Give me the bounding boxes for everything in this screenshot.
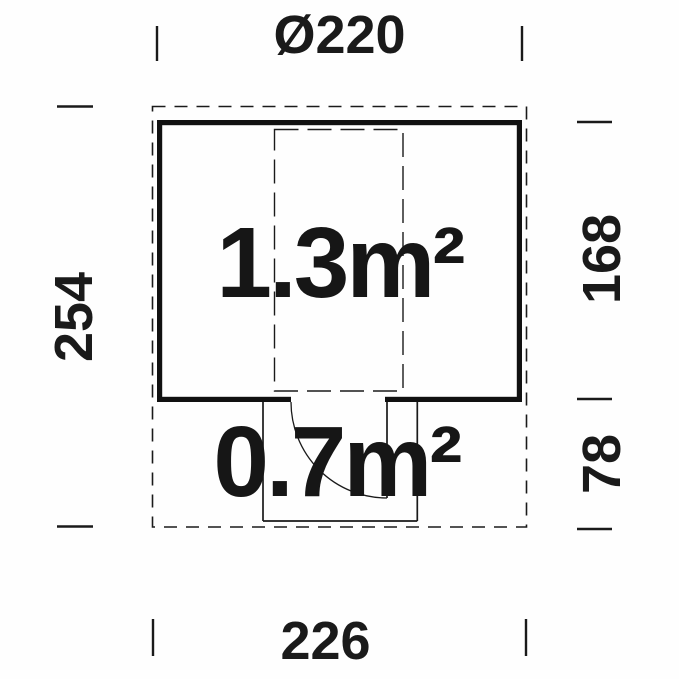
dimension-bottom-width: 226 bbox=[143, 614, 508, 668]
dimension-top-width: Ø220 bbox=[157, 8, 522, 62]
wall-top bbox=[157, 120, 522, 125]
wall-bottom-left-of-door bbox=[157, 397, 291, 402]
dimension-right-upper-height: 168 bbox=[575, 214, 629, 304]
dimension-left-height: 254 bbox=[47, 272, 101, 362]
main-room-area-label: 1.3m² bbox=[157, 213, 522, 313]
floor-plan-canvas: Ø220 254 168 78 226 1.3m² 0.7m² bbox=[0, 0, 679, 679]
dimension-right-lower-height: 78 bbox=[575, 434, 629, 494]
wall-bottom-right-of-door bbox=[385, 397, 522, 402]
annex-area-label: 0.7m² bbox=[150, 412, 523, 512]
